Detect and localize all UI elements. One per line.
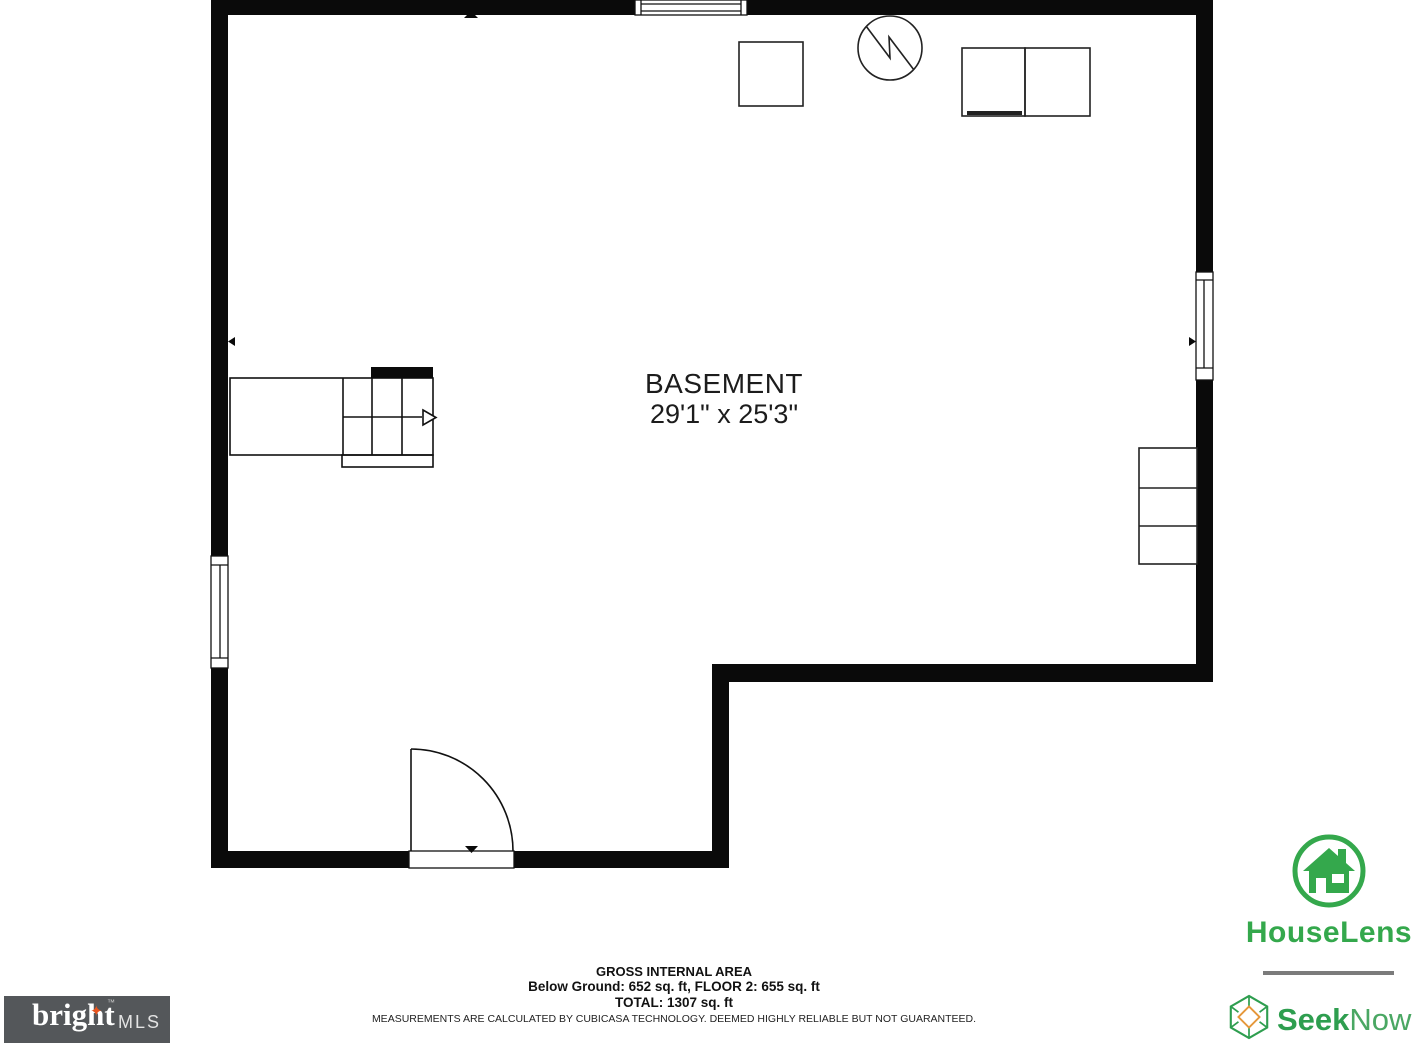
shelving-icon [1139,448,1197,564]
seeknow-word-now: Now [1349,1002,1411,1037]
area-summary-title: GROSS INTERNAL AREA [74,964,1274,979]
seeknow-word-seek: Seek [1277,1002,1349,1037]
area-summary-total: TOTAL: 1307 sq. ft [74,995,1274,1011]
mls-wordmark: MLS [118,1012,161,1033]
seeknow-wordmark: SeekNow [1277,1002,1411,1038]
window-right-icon [1196,272,1213,380]
houselens-wordmark: HouseLens [1234,916,1421,950]
fixture-square-icon [739,42,803,106]
area-summary-disclaimer: MEASUREMENTS ARE CALCULATED BY CUBICASA … [74,1013,1274,1026]
area-summary-areas: Below Ground: 652 sq. ft, FLOOR 2: 655 s… [74,979,1274,995]
window-left-icon [211,556,228,668]
floorplan-page: BASEMENT 29'1" x 25'3" GROSS INTERNAL AR… [0,0,1421,1044]
area-summary: GROSS INTERNAL AREA Below Ground: 652 sq… [74,964,1274,1026]
star-icon: ✦ [90,1002,103,1020]
cube-icon [1226,994,1272,1040]
walls [211,0,1213,868]
door-swing-icon [409,749,514,868]
trademark-symbol: ™ [107,998,115,1007]
marker-right-icon [1189,337,1196,346]
window-top-icon [635,0,747,15]
bright-mls-logo: bright ✦ ™ MLS [4,996,170,1043]
appliance-icons [962,48,1090,116]
divider-line [1263,971,1394,975]
house-icon [1288,830,1370,912]
wall-marker-icons [228,11,1196,346]
marker-left-icon [228,337,235,346]
room-label: BASEMENT 29'1" x 25'3" [374,368,1074,430]
room-name: BASEMENT [374,368,1074,399]
water-heater-icon [858,16,922,80]
room-dimensions: 29'1" x 25'3" [374,399,1074,430]
floorplan-drawing [0,0,1421,1044]
